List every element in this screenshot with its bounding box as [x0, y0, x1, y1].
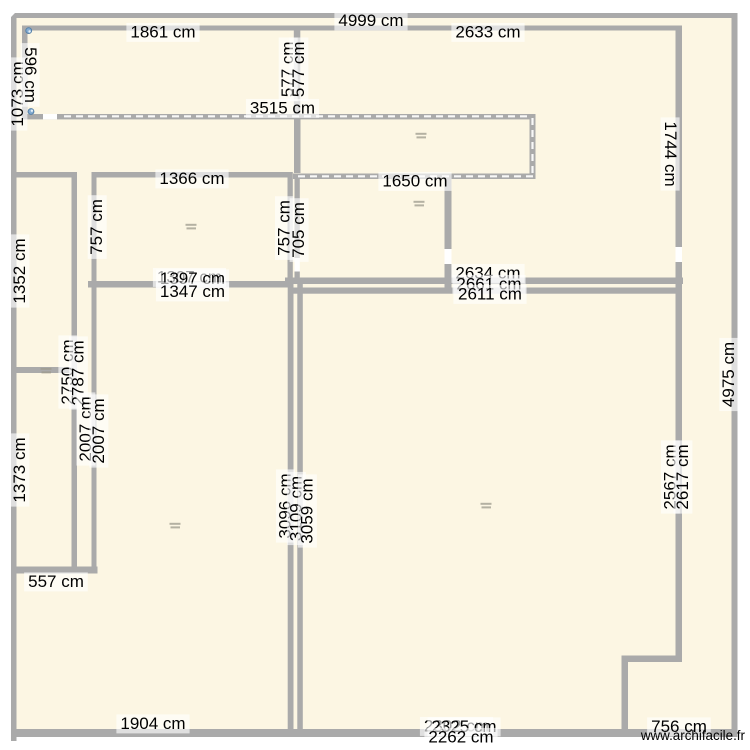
svg-text:577 cm: 577 cm [289, 41, 308, 97]
svg-text:557 cm: 557 cm [28, 572, 84, 591]
svg-text:2262 cm: 2262 cm [428, 727, 493, 746]
svg-text:596 cm: 596 cm [21, 47, 40, 103]
svg-text:1373 cm: 1373 cm [10, 437, 29, 502]
svg-text:1352 cm: 1352 cm [10, 238, 29, 303]
svg-text:705 cm: 705 cm [289, 202, 308, 258]
svg-text:2611 cm: 2611 cm [458, 284, 522, 303]
svg-text:www.archifacile.fr: www.archifacile.fr [640, 728, 746, 743]
svg-text:4999 cm: 4999 cm [338, 11, 403, 30]
svg-text:2617 cm: 2617 cm [673, 444, 692, 509]
svg-text:3515 cm: 3515 cm [250, 98, 315, 117]
svg-text:1861 cm: 1861 cm [130, 22, 195, 41]
svg-text:757 cm: 757 cm [87, 199, 106, 255]
svg-text:1904 cm: 1904 cm [120, 714, 185, 733]
svg-text:2633 cm: 2633 cm [455, 22, 520, 41]
svg-text:4975 cm: 4975 cm [719, 342, 738, 407]
svg-text:1744 cm: 1744 cm [661, 121, 680, 186]
svg-text:1347 cm: 1347 cm [160, 282, 225, 301]
svg-text:1650 cm: 1650 cm [382, 171, 447, 190]
svg-text:1366 cm: 1366 cm [159, 169, 224, 188]
svg-text:3059 cm: 3059 cm [297, 478, 316, 543]
svg-text:2007 cm: 2007 cm [89, 398, 108, 463]
